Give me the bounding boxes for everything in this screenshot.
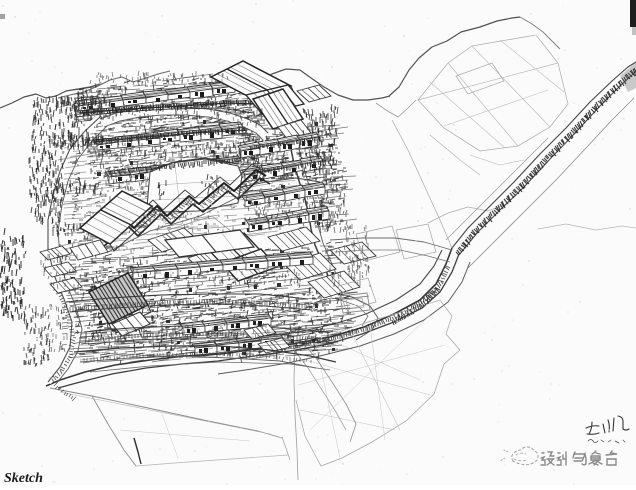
- svg-text:Sketch: Sketch: [4, 471, 43, 485]
